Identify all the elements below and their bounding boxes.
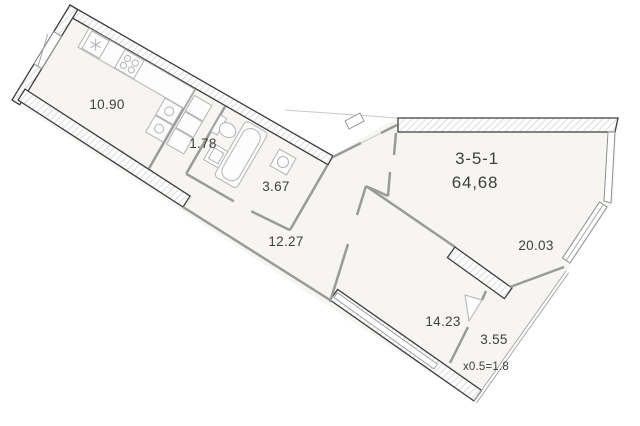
label-unit-id: 3-5-1: [455, 149, 499, 168]
label-balcony-area: 3.55: [480, 332, 507, 347]
floor-plan-page: 10.90 1.78 3.67 12.27 3-5-1 64,68 20.03 …: [0, 0, 640, 426]
context-line-corridor: [285, 110, 397, 118]
label-balcony-coefficient: x0.5=1.8: [463, 361, 509, 373]
label-total-area: 64,68: [452, 173, 499, 192]
label-bedroom-area: 14.23: [425, 314, 460, 329]
exterior-wall-top-right-wing: [398, 118, 618, 132]
label-living-room-area: 20.03: [518, 238, 553, 253]
label-kitchen-living-area: 10.90: [89, 97, 124, 112]
label-bathroom-area: 3.67: [262, 179, 289, 194]
apartment-interior: [12, 5, 617, 401]
floor-plan: 10.90 1.78 3.67 12.27 3-5-1 64,68 20.03 …: [0, 0, 640, 426]
label-corridor-area: 1.78: [189, 136, 216, 151]
label-hall-area: 12.27: [268, 234, 303, 249]
